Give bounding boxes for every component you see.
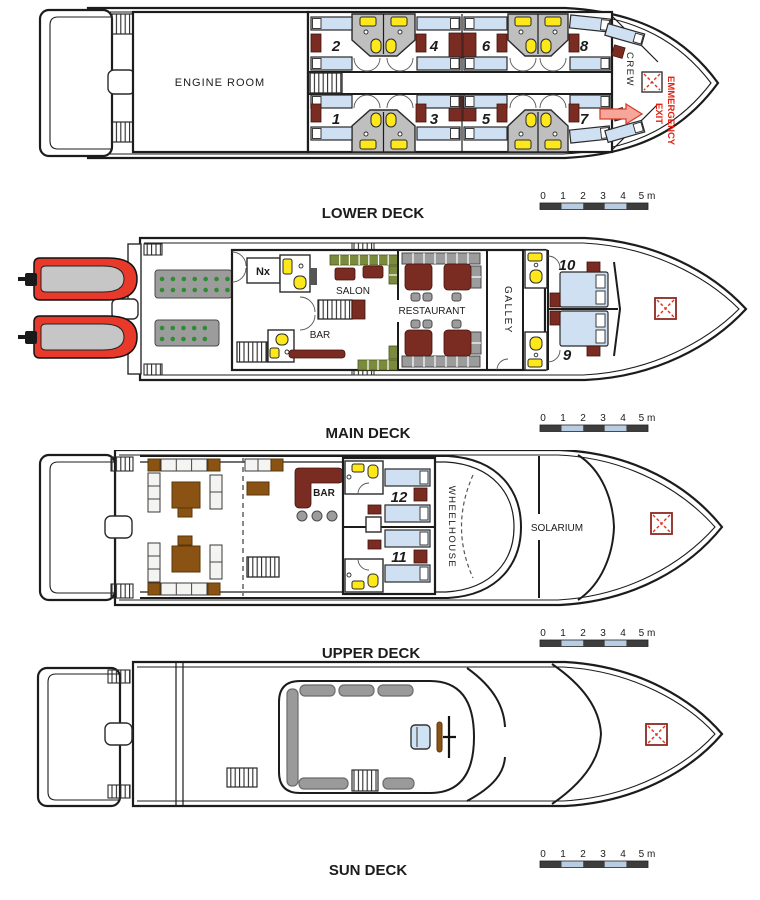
scale-tick: 0 — [540, 628, 546, 639]
vent-grille — [112, 14, 133, 34]
engine-room-label: ENGINE ROOM — [175, 77, 265, 89]
stern-notch — [105, 723, 132, 745]
galley-label: GALLEY — [502, 286, 513, 334]
scale-tick: 1 — [560, 191, 566, 202]
dining-table — [444, 330, 471, 356]
cabin-block: 2 4 6 8 1 — [308, 12, 612, 152]
scale-tick: 3 — [600, 849, 606, 860]
stern-platform — [40, 10, 112, 156]
restaurant-label: RESTAURANT — [398, 306, 465, 317]
bathroom — [345, 559, 383, 592]
deck-grille — [227, 768, 257, 787]
vent-grille — [144, 244, 162, 255]
scale-bar: 0 1 2 3 4 5 m — [540, 413, 655, 432]
bar-label: BAR — [310, 330, 331, 341]
vent-grille — [111, 584, 133, 598]
solarium-label: SOLARIUM — [531, 523, 583, 534]
scale-bar: 0 1 2 3 4 5 m — [540, 628, 655, 647]
crew-label: CREW — [624, 52, 635, 87]
main-deck-plan: Nx SALON BAR — [0, 225, 760, 450]
wheelhouse-label: WHEELHOUSE — [446, 486, 457, 569]
stairs — [247, 557, 279, 577]
vent-grille — [108, 785, 130, 798]
scale-tick: 4 — [620, 628, 626, 639]
stairs — [237, 342, 267, 362]
cabin-9-label: 9 — [563, 347, 572, 364]
scale-tick: 5 m — [639, 628, 656, 639]
scale-tick: 0 — [540, 849, 546, 860]
bar-stool — [312, 511, 322, 521]
cabin-11-label: 11 — [391, 549, 407, 566]
cabin-7-label: 7 — [580, 111, 589, 128]
scale-tick: 2 — [580, 191, 586, 202]
scale-tick: 1 — [560, 413, 566, 424]
scale-tick: 5 m — [639, 191, 656, 202]
upper-deck-plan: BAR 12 — [0, 450, 760, 660]
corridor-stairs — [310, 73, 342, 93]
upper-cabins: 12 11 — [343, 458, 435, 594]
main-superstructure: Nx SALON BAR — [232, 250, 547, 370]
scale-tick: 3 — [600, 413, 606, 424]
scale-tick: 3 — [600, 191, 606, 202]
stern-notch — [105, 516, 132, 538]
stern-platform — [40, 455, 115, 600]
tender-boat — [18, 258, 137, 300]
cabin-4-label: 4 — [429, 38, 439, 55]
dining-table — [405, 330, 432, 356]
vent-grille — [144, 364, 162, 375]
bar-stool — [297, 511, 307, 521]
scale-tick: 4 — [620, 191, 626, 202]
bar-counter — [289, 350, 345, 358]
cabin-3-label: 3 — [430, 111, 439, 128]
tender-boat — [18, 316, 137, 358]
cabin-12-label: 12 — [391, 489, 408, 506]
salon-stairs — [318, 300, 352, 319]
cabin-5-label: 5 — [482, 111, 491, 128]
scale-tick: 1 — [560, 849, 566, 860]
lounge-table — [172, 546, 200, 572]
deck-bench — [155, 320, 219, 346]
outboard-motor — [25, 331, 37, 344]
stairs — [352, 770, 378, 791]
bar-label: BAR — [313, 488, 335, 499]
vent-grille — [112, 122, 133, 142]
sun-deck-plan: SUN DECK 0 1 2 3 4 5 m — [0, 660, 760, 900]
escape-hatch — [651, 513, 672, 534]
engine-room: ENGINE ROOM — [133, 12, 308, 152]
emergency-exit-label-line2: EXIT — [653, 103, 664, 124]
scale-tick: 2 — [580, 413, 586, 424]
wc-room — [525, 250, 547, 288]
scale-tick: 2 — [580, 628, 586, 639]
dining-table — [444, 264, 471, 290]
salon-label: SALON — [336, 286, 370, 297]
escape-hatch — [646, 724, 667, 745]
lower-deck-title: LOWER DECK — [322, 205, 425, 222]
upper-deck-title: UPPER DECK — [322, 645, 421, 660]
sun-deck-title: SUN DECK — [329, 862, 408, 879]
lower-deck-plan: ENGINE ROOM — [0, 0, 760, 225]
cabin-10-label: 10 — [559, 257, 576, 274]
vent-grille — [111, 457, 133, 471]
closet — [366, 517, 381, 532]
scale-tick: 4 — [620, 413, 626, 424]
scale-tick: 0 — [540, 191, 546, 202]
lounge-table — [172, 482, 200, 508]
bathroom — [345, 461, 383, 494]
scale-bar: 0 1 2 3 4 5 m — [540, 849, 655, 868]
wc-room — [525, 332, 547, 370]
escape-hatch — [642, 72, 662, 92]
cabin-2-label: 2 — [331, 38, 341, 55]
main-deck-title: MAIN DECK — [326, 425, 411, 442]
scale-tick: 2 — [580, 849, 586, 860]
dining-table — [405, 264, 432, 290]
sofa-group — [148, 459, 222, 517]
deck-bench — [155, 270, 232, 298]
cabin-6-label: 6 — [482, 38, 491, 55]
scale-tick: 3 — [600, 628, 606, 639]
escape-hatch — [655, 298, 676, 319]
nx-room: Nx — [247, 258, 280, 283]
stern-notch — [108, 70, 135, 94]
helm-seat — [411, 725, 430, 749]
sofa-group — [148, 536, 222, 595]
bar-stool — [327, 511, 337, 521]
scale-tick: 1 — [560, 628, 566, 639]
steering-wheel — [437, 722, 442, 752]
vent-grille — [108, 670, 130, 683]
scale-tick: 0 — [540, 413, 546, 424]
emergency-exit-label-line1: EMMERGENCY — [665, 76, 676, 146]
cabin-1-label: 1 — [332, 111, 340, 128]
outboard-motor — [25, 273, 37, 286]
sun-hull — [38, 662, 722, 806]
scale-tick: 5 m — [639, 849, 656, 860]
scale-tick: 5 m — [639, 413, 656, 424]
cabin-8-label: 8 — [580, 38, 589, 55]
scale-tick: 4 — [620, 849, 626, 860]
deck-plan-page: ENGINE ROOM — [0, 0, 760, 900]
lounge-table — [247, 482, 269, 495]
nx-label: Nx — [256, 266, 271, 278]
scale-bar: 0 1 2 3 4 5 m — [540, 191, 655, 210]
